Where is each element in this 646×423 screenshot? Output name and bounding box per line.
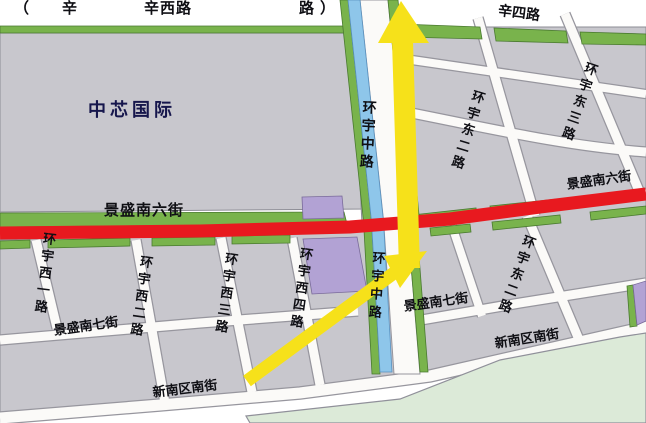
smic-block <box>0 33 368 212</box>
map-canvas <box>0 0 646 423</box>
purple-block-south <box>303 237 367 294</box>
road-label-jingsheng-s6-west: 景盛南六街 <box>104 203 184 218</box>
road-label-huanyu-middle-north: 环宇中路 <box>358 100 376 173</box>
road-label-xin: 辛 <box>62 1 77 16</box>
map-image: （ 辛 辛西路 路 ） 辛四路 中芯国际 景盛南六街 景盛南六街 环宇中路 环宇… <box>0 0 646 423</box>
road-label-lu: 路 <box>299 1 314 16</box>
road-label-xinxilu: 辛西路 <box>144 1 192 16</box>
purple-block-north <box>302 196 344 219</box>
road-label-paren-close: ） <box>320 1 335 16</box>
smic-label: 中芯国际 <box>88 102 176 120</box>
road-label-paren-open: （ <box>14 1 29 16</box>
